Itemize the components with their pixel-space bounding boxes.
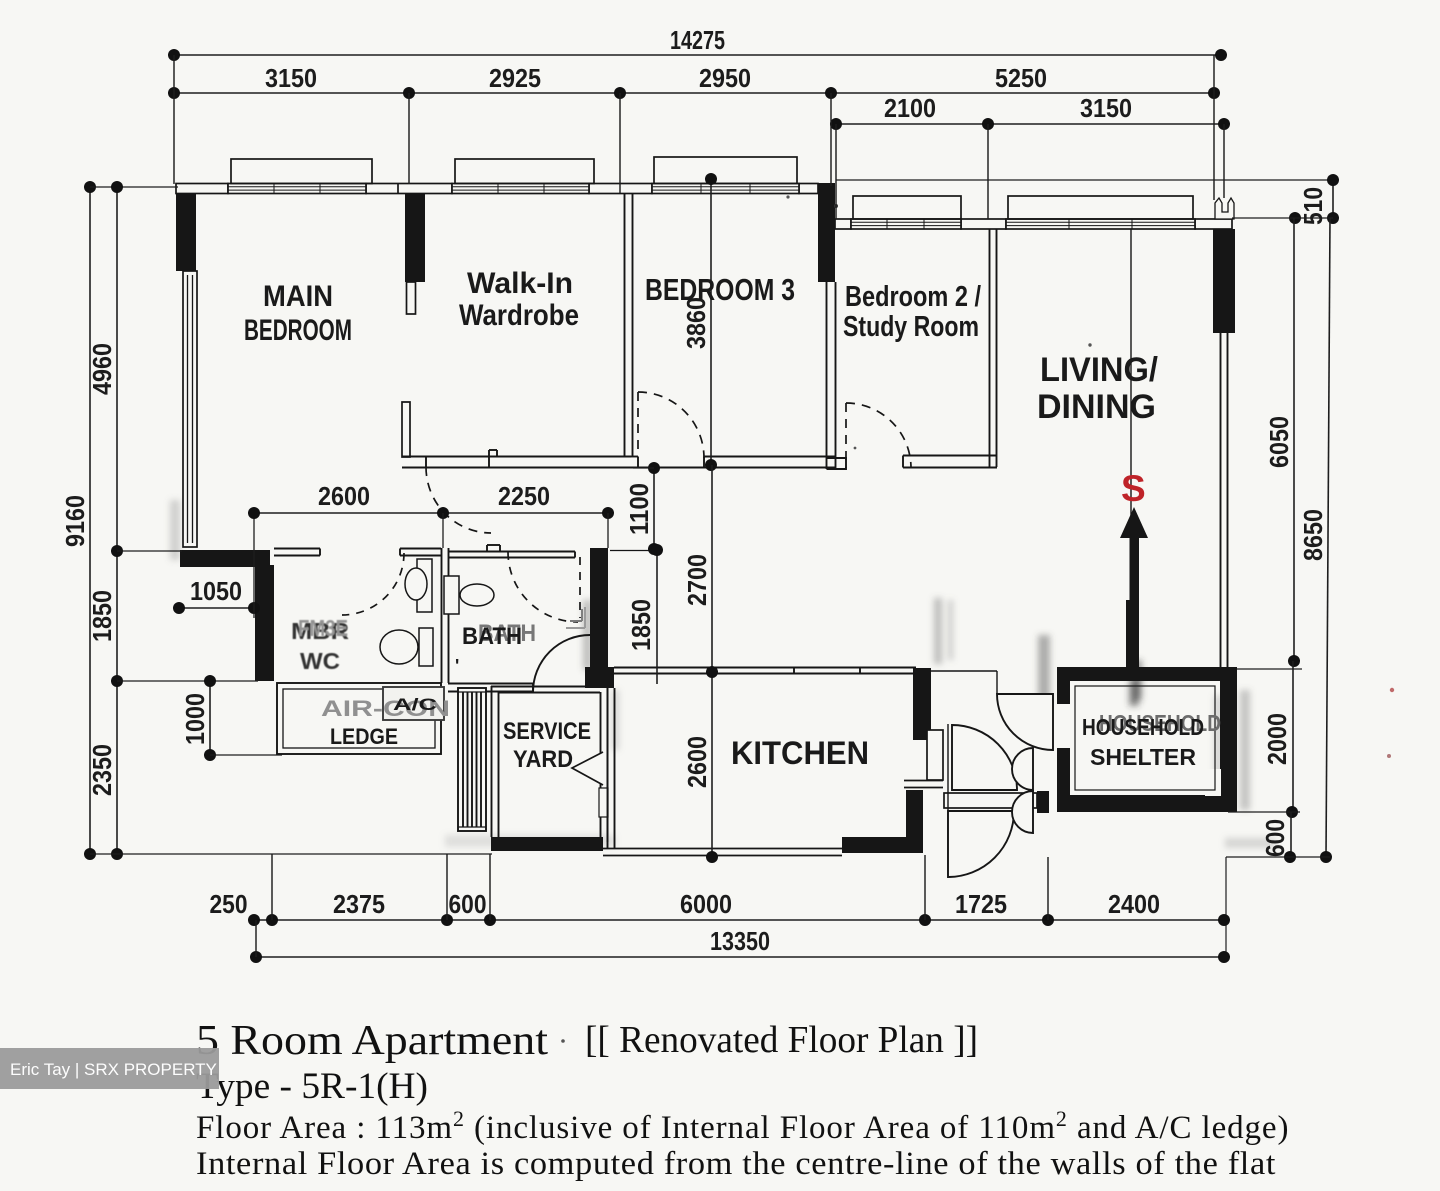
svg-text:9160: 9160 bbox=[60, 495, 90, 547]
svg-text:Bedroom 2 /: Bedroom 2 / bbox=[845, 281, 981, 313]
svg-text:2000: 2000 bbox=[1262, 713, 1292, 765]
svg-text:2600: 2600 bbox=[682, 736, 712, 788]
svg-text:6050: 6050 bbox=[1264, 416, 1294, 468]
svg-text:5 Room Apartment: 5 Room Apartment bbox=[196, 1018, 548, 1064]
svg-text:SERVICE: SERVICE bbox=[503, 718, 591, 745]
svg-text:1050: 1050 bbox=[190, 576, 242, 606]
svg-text:Internal Floor Area is compute: Internal Floor Area is computed from the… bbox=[196, 1146, 1276, 1182]
svg-text:600: 600 bbox=[449, 889, 487, 919]
svg-text:2250: 2250 bbox=[498, 481, 550, 511]
svg-text:2950: 2950 bbox=[699, 63, 751, 93]
svg-text:1100: 1100 bbox=[624, 483, 654, 535]
svg-text:YARD: YARD bbox=[513, 746, 573, 773]
svg-text:2400: 2400 bbox=[1108, 889, 1160, 919]
svg-text:1725: 1725 bbox=[955, 889, 1007, 919]
svg-text:2375: 2375 bbox=[333, 889, 385, 919]
svg-text:HOUSEHOLD: HOUSEHOLD bbox=[1082, 714, 1204, 740]
svg-text:MAIN: MAIN bbox=[263, 280, 333, 313]
svg-text:1850: 1850 bbox=[87, 590, 117, 642]
svg-text:BATH: BATH bbox=[462, 623, 522, 650]
svg-text:250: 250 bbox=[210, 889, 248, 919]
svg-text:Study Room: Study Room bbox=[843, 311, 979, 343]
svg-text:LIVING/: LIVING/ bbox=[1040, 351, 1159, 389]
svg-text:WC: WC bbox=[300, 648, 340, 674]
svg-text:Floor Area : 113m2 (inclusive: Floor Area : 113m2 (inclusive of Interna… bbox=[196, 1106, 1289, 1146]
svg-text:FM3E: FM3E bbox=[298, 615, 348, 641]
svg-text:DINING: DINING bbox=[1037, 388, 1156, 426]
svg-text:510: 510 bbox=[1298, 187, 1328, 225]
svg-text:8650: 8650 bbox=[1298, 509, 1328, 561]
svg-text:600: 600 bbox=[1260, 819, 1290, 857]
svg-text:14275: 14275 bbox=[670, 25, 725, 55]
svg-text:A/C: A/C bbox=[393, 695, 437, 714]
svg-text:1000: 1000 bbox=[180, 693, 210, 745]
svg-text:BEDROOM: BEDROOM bbox=[244, 314, 352, 347]
svg-text:3150: 3150 bbox=[265, 63, 317, 93]
svg-text:Eric Tay | SRX PROPERTY: Eric Tay | SRX PROPERTY bbox=[10, 1060, 217, 1079]
svg-text:3150: 3150 bbox=[1080, 93, 1132, 123]
svg-text:LEDGE: LEDGE bbox=[330, 724, 398, 749]
svg-text:5250: 5250 bbox=[995, 63, 1047, 93]
svg-text:Wardrobe: Wardrobe bbox=[459, 299, 579, 332]
svg-text:[[ Renovated Floor Plan ]]: [[ Renovated Floor Plan ]] bbox=[585, 1019, 978, 1061]
svg-text:': ' bbox=[455, 656, 459, 676]
svg-text:2700: 2700 bbox=[682, 554, 712, 606]
svg-text:Walk-In: Walk-In bbox=[467, 267, 573, 300]
svg-text:13350: 13350 bbox=[710, 926, 770, 956]
svg-text:2925: 2925 bbox=[489, 63, 541, 93]
svg-text:2350: 2350 bbox=[87, 744, 117, 796]
svg-text:BEDROOM 3: BEDROOM 3 bbox=[645, 272, 795, 307]
svg-text:1850: 1850 bbox=[626, 599, 656, 651]
svg-text:2100: 2100 bbox=[884, 93, 936, 123]
svg-text:6000: 6000 bbox=[680, 889, 732, 919]
svg-text:2600: 2600 bbox=[318, 481, 370, 511]
svg-text:4960: 4960 bbox=[87, 343, 117, 395]
svg-text:SHELTER: SHELTER bbox=[1090, 744, 1196, 770]
svg-text:S: S bbox=[1121, 468, 1146, 509]
svg-text:Type - 5R-1(H): Type - 5R-1(H) bbox=[196, 1066, 428, 1107]
svg-text:KITCHEN: KITCHEN bbox=[731, 735, 869, 771]
